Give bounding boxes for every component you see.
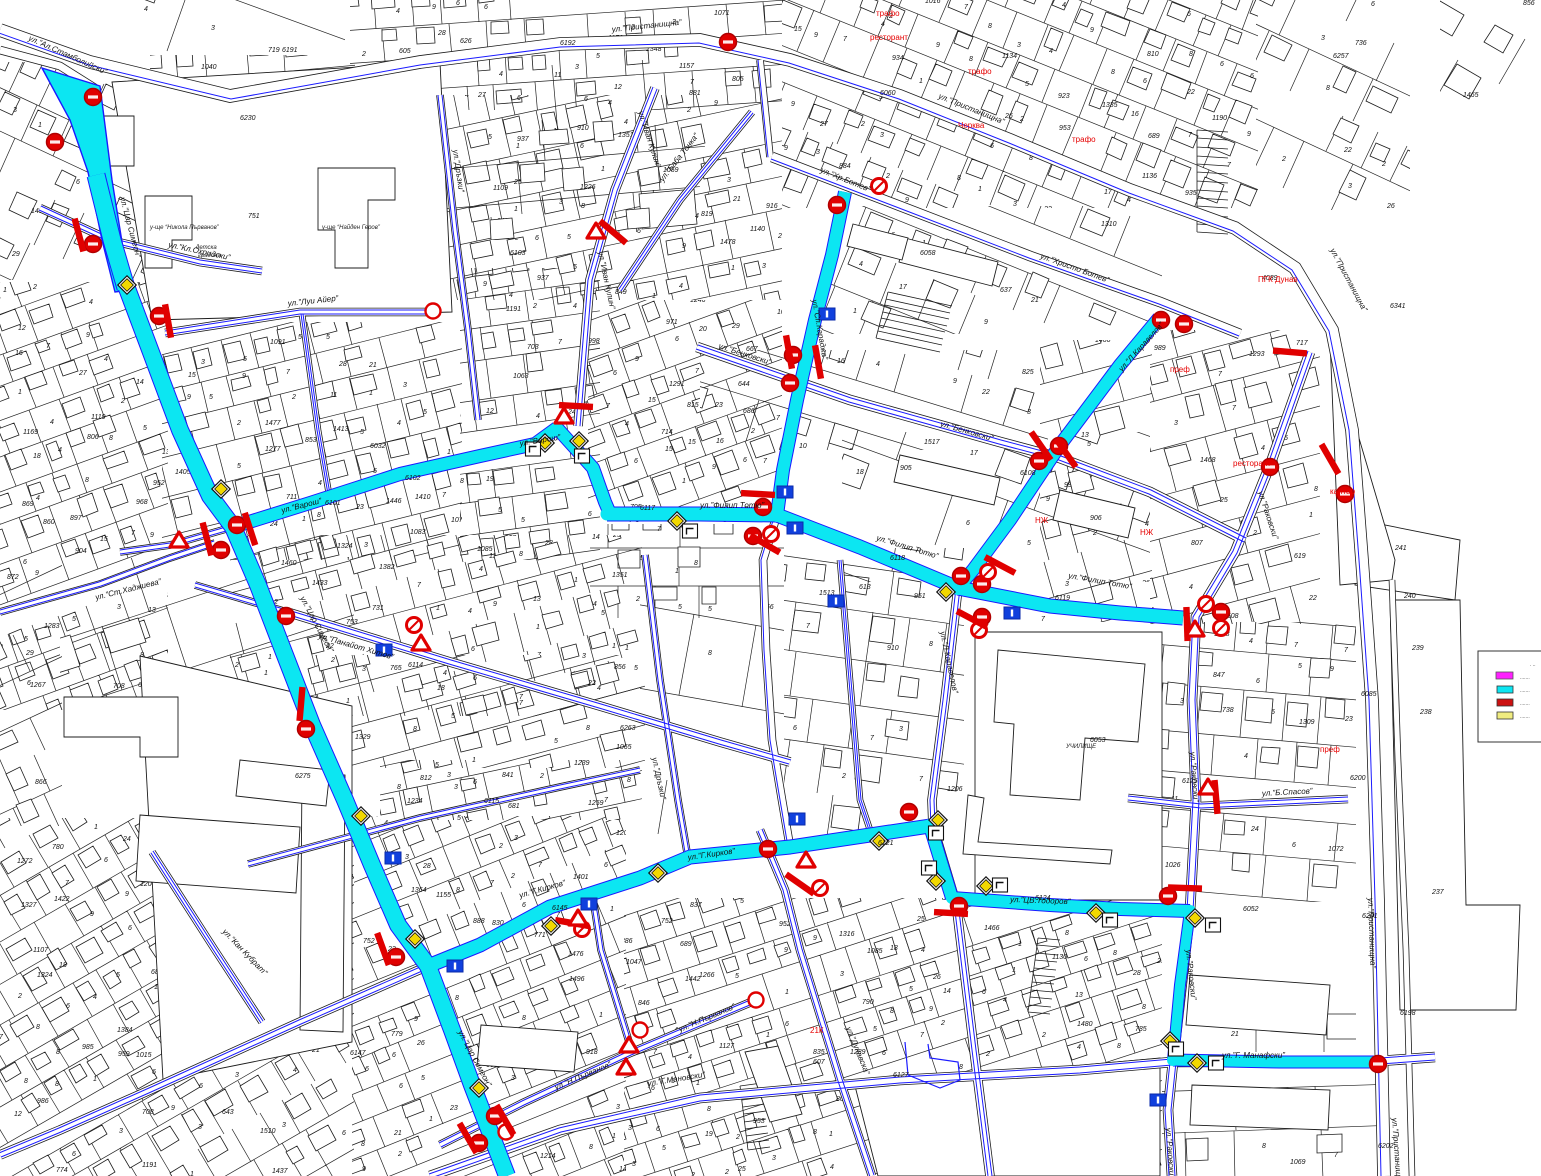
svg-text:1460: 1460 — [281, 560, 297, 567]
svg-text:1157: 1157 — [679, 63, 695, 70]
svg-text:790: 790 — [862, 999, 874, 1006]
svg-text:2: 2 — [120, 398, 125, 405]
svg-text:8: 8 — [957, 175, 961, 182]
svg-text:6: 6 — [152, 1069, 156, 1076]
svg-text:28: 28 — [422, 863, 431, 870]
svg-text:6200: 6200 — [1350, 775, 1366, 782]
svg-text:3: 3 — [201, 359, 205, 366]
svg-text:6: 6 — [473, 779, 477, 786]
svg-text:5: 5 — [451, 713, 455, 720]
svg-text:2: 2 — [291, 394, 296, 401]
svg-text:6: 6 — [1256, 678, 1260, 685]
svg-text:12: 12 — [14, 1111, 22, 1118]
svg-text:6: 6 — [399, 1083, 403, 1090]
svg-text:1: 1 — [302, 516, 306, 523]
svg-text:916: 916 — [766, 203, 778, 210]
svg-text:637: 637 — [1000, 287, 1013, 294]
svg-text:8: 8 — [460, 478, 464, 485]
svg-text:3: 3 — [13, 107, 17, 114]
svg-text:18: 18 — [33, 453, 41, 460]
svg-text:6: 6 — [604, 862, 608, 869]
svg-text:8: 8 — [456, 887, 460, 894]
svg-text:3: 3 — [364, 542, 368, 549]
svg-text:613: 613 — [859, 584, 871, 591]
svg-text:8: 8 — [522, 1015, 526, 1022]
svg-text:3: 3 — [772, 1155, 776, 1162]
svg-text:736: 736 — [1355, 40, 1367, 47]
svg-text:1: 1 — [268, 654, 272, 661]
svg-text:952: 952 — [153, 480, 165, 487]
svg-text:923: 923 — [1058, 93, 1070, 100]
svg-text:ресторант: ресторант — [1233, 459, 1271, 468]
svg-text:5: 5 — [298, 334, 302, 341]
svg-text:4: 4 — [1077, 1044, 1081, 1051]
svg-text:4: 4 — [1127, 197, 1131, 204]
svg-text:1: 1 — [472, 757, 476, 764]
svg-text:5: 5 — [708, 606, 712, 613]
svg-text:6257: 6257 — [1333, 53, 1350, 60]
svg-text:6: 6 — [793, 725, 797, 732]
svg-text:1477: 1477 — [265, 420, 282, 427]
svg-text:8: 8 — [708, 650, 712, 657]
svg-text:1384: 1384 — [117, 1027, 133, 1034]
svg-text:9: 9 — [813, 935, 817, 942]
svg-text:934: 934 — [892, 55, 904, 62]
svg-text:6: 6 — [72, 1151, 76, 1158]
svg-text:4: 4 — [608, 100, 612, 107]
svg-text:3: 3 — [632, 1161, 636, 1168]
svg-text:8: 8 — [519, 551, 523, 558]
svg-text:9: 9 — [483, 281, 487, 288]
svg-text:1: 1 — [978, 186, 982, 193]
svg-text:3: 3 — [211, 25, 215, 32]
svg-text:4: 4 — [50, 419, 54, 426]
svg-text:708: 708 — [142, 1109, 154, 1116]
svg-text:5: 5 — [488, 134, 492, 141]
svg-text:846: 846 — [638, 1000, 650, 1007]
svg-text:16: 16 — [716, 438, 724, 445]
svg-text:14: 14 — [943, 988, 951, 995]
svg-text:6108: 6108 — [1020, 470, 1036, 477]
svg-text:1140: 1140 — [750, 226, 765, 233]
svg-text:6: 6 — [637, 228, 641, 235]
svg-text:.......: ....... — [1520, 714, 1530, 720]
svg-text:986: 986 — [37, 1098, 49, 1105]
svg-text:805: 805 — [732, 76, 744, 83]
svg-text:8: 8 — [959, 1064, 963, 1071]
svg-text:1364: 1364 — [411, 887, 427, 894]
svg-text:1136: 1136 — [1142, 173, 1157, 180]
svg-text:6: 6 — [634, 458, 638, 465]
svg-text:16: 16 — [1131, 111, 1139, 118]
svg-text:8: 8 — [397, 784, 401, 791]
svg-text:3: 3 — [514, 835, 518, 842]
svg-text:4: 4 — [597, 685, 601, 692]
svg-text:3: 3 — [628, 1125, 632, 1132]
svg-text:1107: 1107 — [33, 947, 49, 954]
svg-text:1155: 1155 — [436, 892, 451, 899]
svg-text:17: 17 — [899, 284, 908, 291]
svg-text:8: 8 — [929, 641, 933, 648]
svg-text:1015: 1015 — [136, 1052, 152, 1059]
svg-text:6: 6 — [471, 646, 475, 653]
svg-text:812: 812 — [420, 775, 432, 782]
svg-text:6118: 6118 — [890, 555, 905, 562]
svg-text:1: 1 — [1012, 967, 1016, 974]
svg-text:6103: 6103 — [510, 250, 526, 257]
svg-text:5: 5 — [909, 986, 913, 993]
svg-text:689: 689 — [680, 941, 692, 948]
svg-text:4: 4 — [293, 1067, 297, 1074]
svg-text:4: 4 — [1062, 2, 1066, 9]
svg-text:1109: 1109 — [493, 185, 508, 192]
svg-text:9: 9 — [171, 1105, 175, 1112]
svg-text:НЖ: НЖ — [1035, 516, 1049, 525]
svg-text:810: 810 — [1147, 51, 1159, 58]
svg-text:1324: 1324 — [337, 543, 353, 550]
svg-text:1214: 1214 — [540, 1153, 556, 1160]
svg-text:ул.”Филип Тотю”: ул.”Филип Тотю” — [699, 501, 764, 510]
svg-text:1465: 1465 — [1463, 92, 1479, 99]
svg-text:4: 4 — [89, 299, 93, 306]
svg-text:717: 717 — [1296, 340, 1309, 347]
svg-text:3: 3 — [575, 64, 579, 71]
svg-text:1316: 1316 — [839, 931, 855, 938]
svg-text:6: 6 — [23, 559, 27, 566]
svg-text:240: 240 — [1403, 593, 1416, 600]
svg-text:5: 5 — [143, 425, 147, 432]
svg-text:6275: 6275 — [295, 773, 311, 780]
svg-text:4: 4 — [679, 283, 683, 290]
svg-text:23: 23 — [355, 504, 364, 511]
svg-text:20: 20 — [698, 326, 707, 333]
svg-text:8: 8 — [581, 203, 585, 210]
svg-text:937: 937 — [517, 136, 530, 143]
svg-text:22: 22 — [1186, 89, 1195, 96]
svg-text:1327: 1327 — [21, 902, 38, 909]
svg-text:8: 8 — [707, 1106, 711, 1113]
svg-text:8: 8 — [589, 1144, 593, 1151]
svg-text:1: 1 — [18, 389, 22, 396]
svg-text:2: 2 — [724, 1169, 729, 1176]
svg-text:1: 1 — [599, 1012, 603, 1019]
svg-text:1309: 1309 — [1299, 719, 1315, 726]
svg-text:753: 753 — [346, 619, 358, 626]
svg-text:21: 21 — [732, 196, 741, 203]
svg-text:5: 5 — [373, 468, 377, 475]
svg-text:УЧИЛИЩЕ: УЧИЛИЩЕ — [1065, 744, 1097, 750]
svg-text:1016: 1016 — [925, 0, 941, 5]
svg-text:6: 6 — [104, 857, 108, 864]
svg-text:6191: 6191 — [282, 47, 298, 54]
svg-text:5: 5 — [554, 738, 558, 745]
svg-text:1: 1 — [853, 308, 857, 315]
svg-text:1267: 1267 — [30, 682, 47, 689]
svg-text:12: 12 — [614, 84, 622, 91]
svg-text:4: 4 — [36, 495, 40, 502]
svg-text:731: 731 — [372, 605, 384, 612]
svg-text:29: 29 — [25, 650, 34, 657]
svg-text:6: 6 — [484, 4, 488, 11]
svg-text:27: 27 — [819, 121, 829, 128]
svg-text:644: 644 — [738, 381, 750, 388]
svg-text:1272: 1272 — [17, 858, 33, 865]
svg-text:937: 937 — [537, 275, 550, 282]
svg-text:22: 22 — [1308, 595, 1317, 602]
svg-text:847: 847 — [1213, 672, 1226, 679]
svg-text:23: 23 — [714, 402, 723, 409]
svg-text:5: 5 — [678, 604, 682, 611]
svg-text:4: 4 — [1145, 521, 1149, 528]
svg-text:6145: 6145 — [552, 905, 568, 912]
svg-text:.......: ....... — [1520, 701, 1530, 707]
svg-text:6: 6 — [517, 95, 521, 102]
svg-text:1: 1 — [675, 568, 679, 575]
svg-text:6: 6 — [76, 179, 80, 186]
svg-text:2: 2 — [686, 107, 691, 114]
svg-text:13: 13 — [533, 596, 541, 603]
svg-text:1: 1 — [731, 265, 735, 272]
svg-text:2: 2 — [985, 1051, 990, 1058]
svg-text:8: 8 — [109, 435, 113, 442]
svg-text:9: 9 — [242, 373, 246, 380]
svg-text:2: 2 — [510, 873, 515, 880]
svg-text:9: 9 — [1330, 666, 1334, 673]
svg-text:6: 6 — [342, 1130, 346, 1137]
svg-text:4: 4 — [499, 71, 503, 78]
svg-text:1071: 1071 — [714, 10, 730, 17]
svg-text:13: 13 — [1075, 992, 1083, 999]
svg-text:1: 1 — [652, 293, 656, 300]
svg-text:3: 3 — [362, 666, 366, 673]
svg-text:1: 1 — [829, 1131, 833, 1138]
svg-text:1: 1 — [682, 478, 686, 485]
svg-text:8: 8 — [413, 726, 417, 733]
svg-text:6192: 6192 — [560, 40, 576, 47]
svg-text:1433: 1433 — [312, 580, 328, 587]
svg-text:19: 19 — [486, 476, 494, 483]
svg-text:6: 6 — [785, 1021, 789, 1028]
svg-text:708: 708 — [113, 683, 125, 690]
svg-text:6: 6 — [580, 143, 584, 150]
svg-text:8: 8 — [1314, 486, 1318, 493]
svg-text:6114: 6114 — [408, 662, 423, 669]
svg-text:681: 681 — [508, 803, 520, 810]
svg-text:719: 719 — [268, 47, 280, 54]
svg-text:5: 5 — [243, 356, 247, 363]
svg-text:9: 9 — [86, 332, 90, 339]
svg-text:1: 1 — [3, 287, 7, 294]
svg-text:5: 5 — [567, 234, 571, 241]
svg-text:1382: 1382 — [379, 564, 395, 571]
svg-text:819: 819 — [701, 211, 713, 218]
svg-text:6101: 6101 — [325, 500, 341, 507]
svg-text:6115: 6115 — [484, 798, 499, 805]
svg-text:1083: 1083 — [410, 529, 426, 536]
svg-text:15: 15 — [688, 439, 696, 446]
svg-text:10: 10 — [799, 443, 807, 450]
svg-text:241: 241 — [1394, 545, 1407, 552]
svg-text:3: 3 — [582, 653, 586, 660]
svg-text:25: 25 — [737, 1166, 746, 1173]
svg-text:4: 4 — [1261, 445, 1265, 452]
svg-text:5: 5 — [1025, 81, 1029, 88]
svg-text:29: 29 — [11, 251, 20, 258]
svg-text:9: 9 — [187, 394, 191, 401]
svg-text:872: 872 — [7, 574, 19, 581]
svg-text:5: 5 — [72, 616, 76, 623]
svg-text:24: 24 — [122, 836, 131, 843]
svg-text:935: 935 — [1185, 190, 1197, 197]
svg-text:1: 1 — [369, 390, 373, 397]
svg-text:21: 21 — [393, 1130, 402, 1137]
svg-text:918: 918 — [586, 1049, 598, 1056]
svg-text:2: 2 — [397, 1151, 402, 1158]
svg-text:711: 711 — [286, 494, 297, 501]
svg-text:1: 1 — [696, 1080, 700, 1087]
svg-text:8: 8 — [1326, 85, 1330, 92]
svg-text:6: 6 — [1371, 1, 1375, 8]
svg-text:9: 9 — [414, 1016, 418, 1023]
svg-text:1413: 1413 — [333, 426, 349, 433]
svg-text:8: 8 — [317, 512, 321, 519]
svg-text:6060: 6060 — [880, 90, 896, 97]
svg-text:9: 9 — [635, 356, 639, 363]
svg-text:9: 9 — [791, 101, 795, 108]
svg-text:3: 3 — [119, 1128, 123, 1135]
svg-text:8: 8 — [85, 477, 89, 484]
svg-text:3: 3 — [616, 1104, 620, 1111]
svg-text:1283: 1283 — [44, 623, 60, 630]
svg-text:1468: 1468 — [1200, 457, 1216, 464]
svg-text:2: 2 — [750, 428, 755, 435]
svg-text:1: 1 — [38, 122, 42, 129]
svg-text:752: 752 — [661, 918, 673, 925]
svg-text:9: 9 — [35, 570, 39, 577]
svg-text:1: 1 — [785, 989, 789, 996]
svg-text:779: 779 — [391, 1031, 403, 1038]
svg-text:15: 15 — [665, 446, 673, 453]
svg-text:815: 815 — [687, 402, 699, 409]
svg-text:853: 853 — [305, 437, 317, 444]
svg-text:13: 13 — [1081, 432, 1089, 439]
svg-text:6124: 6124 — [1035, 895, 1051, 902]
svg-text:6201: 6201 — [1362, 913, 1378, 920]
svg-text:6: 6 — [1187, 11, 1191, 18]
svg-text:860: 860 — [43, 519, 55, 526]
svg-text:23: 23 — [1344, 716, 1353, 723]
svg-text:18: 18 — [856, 469, 864, 476]
svg-text:4: 4 — [144, 6, 148, 13]
svg-text:785: 785 — [1135, 1026, 1147, 1033]
svg-text:трафо: трафо — [1072, 135, 1096, 144]
svg-text:1422: 1422 — [54, 896, 70, 903]
svg-text:16: 16 — [837, 358, 845, 365]
svg-text:21К: 21К — [810, 1026, 824, 1035]
svg-text:6: 6 — [199, 1083, 203, 1090]
svg-text:780: 780 — [52, 844, 64, 851]
svg-text:607: 607 — [813, 1059, 826, 1066]
svg-text:643: 643 — [222, 1109, 234, 1116]
svg-text:1: 1 — [436, 605, 440, 612]
svg-text:22: 22 — [1343, 147, 1352, 154]
svg-text:238: 238 — [1419, 709, 1432, 716]
svg-text:888: 888 — [473, 918, 485, 925]
svg-text:1: 1 — [93, 1076, 97, 1083]
svg-text:6: 6 — [456, 0, 460, 7]
svg-text:5: 5 — [662, 1145, 666, 1152]
svg-text:703: 703 — [527, 344, 539, 351]
svg-text:4: 4 — [921, 947, 925, 954]
svg-text:1277: 1277 — [265, 446, 282, 453]
svg-text:9: 9 — [984, 319, 988, 326]
svg-text:8: 8 — [988, 23, 992, 30]
svg-text:1496: 1496 — [569, 976, 585, 983]
svg-text:преф: преф — [1170, 365, 1190, 374]
svg-text:9: 9 — [1247, 131, 1251, 138]
svg-text:21: 21 — [1030, 297, 1039, 304]
svg-text:6202: 6202 — [1378, 1143, 1394, 1150]
svg-text:4: 4 — [695, 213, 699, 220]
svg-text:4: 4 — [876, 361, 880, 368]
svg-text:6: 6 — [473, 675, 477, 682]
svg-text:1401: 1401 — [573, 874, 589, 881]
svg-text:5: 5 — [634, 665, 638, 672]
svg-text:8: 8 — [1117, 1043, 1121, 1050]
svg-text:5: 5 — [237, 463, 241, 470]
svg-text:959: 959 — [118, 1051, 130, 1058]
svg-text:825: 825 — [1022, 369, 1034, 376]
svg-text:6147: 6147 — [350, 1050, 367, 1057]
svg-text:6: 6 — [1292, 842, 1296, 849]
svg-text:4: 4 — [509, 292, 513, 299]
svg-text:1293: 1293 — [1249, 351, 1265, 358]
svg-text:1234: 1234 — [407, 798, 423, 805]
svg-text:5: 5 — [116, 972, 120, 979]
svg-text:2: 2 — [361, 51, 366, 58]
svg-text:18: 18 — [848, 0, 856, 2]
svg-text:6: 6 — [882, 1050, 886, 1057]
svg-text:1335: 1335 — [1102, 102, 1118, 109]
svg-text:881: 881 — [689, 90, 701, 97]
svg-text:4: 4 — [859, 261, 863, 268]
svg-text:5: 5 — [209, 394, 213, 401]
svg-text:6119: 6119 — [1055, 595, 1070, 602]
svg-text:5: 5 — [873, 1026, 877, 1033]
svg-text:2: 2 — [690, 1172, 695, 1176]
svg-text:1437: 1437 — [272, 1168, 289, 1175]
svg-text:трафо: трафо — [876, 9, 900, 18]
svg-text:27: 27 — [477, 92, 487, 99]
svg-text:8: 8 — [1142, 1004, 1146, 1011]
svg-text:1: 1 — [346, 698, 350, 705]
svg-text:5: 5 — [1271, 709, 1275, 716]
svg-text:25: 25 — [1219, 497, 1228, 504]
svg-text:1446: 1446 — [386, 498, 402, 505]
svg-text:6: 6 — [966, 520, 970, 527]
svg-text:6: 6 — [128, 925, 132, 932]
svg-text:6: 6 — [675, 336, 679, 343]
svg-text:605: 605 — [399, 48, 411, 55]
svg-text:2: 2 — [1252, 530, 1257, 537]
svg-text:у-ще “Никола Първанов”: у-ще “Никола Първанов” — [149, 225, 220, 231]
svg-text:4: 4 — [830, 1164, 834, 1171]
svg-text:4: 4 — [1244, 753, 1248, 760]
svg-text:1329: 1329 — [355, 734, 371, 741]
svg-text:771: 771 — [534, 932, 546, 939]
svg-text:2: 2 — [1092, 530, 1097, 537]
svg-text:8: 8 — [890, 1008, 894, 1015]
